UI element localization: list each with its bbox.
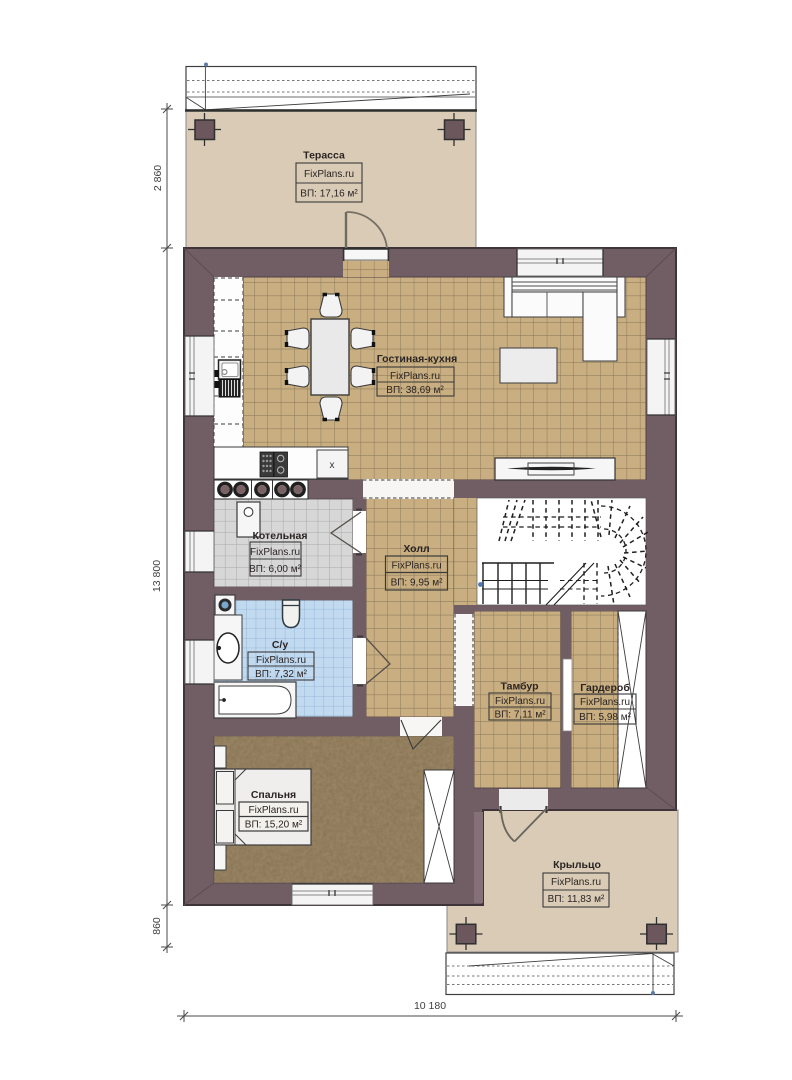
- svg-text:FixPlans.ru: FixPlans.ru: [304, 169, 354, 180]
- svg-text:ВП: 15,20 м²: ВП: 15,20 м²: [245, 820, 303, 831]
- svg-text:С/у: С/у: [272, 639, 289, 651]
- svg-text:13 800: 13 800: [151, 560, 163, 592]
- svg-text:ВП: 5,98 м²: ВП: 5,98 м²: [579, 712, 632, 723]
- svg-text:2 860: 2 860: [152, 165, 164, 191]
- svg-text:Котельная: Котельная: [253, 530, 308, 542]
- svg-text:860: 860: [151, 917, 163, 935]
- svg-text:Холл: Холл: [403, 543, 429, 555]
- svg-text:ВП: 7,11 м²: ВП: 7,11 м²: [494, 710, 546, 721]
- svg-text:10 180: 10 180: [414, 1000, 446, 1012]
- svg-text:ВП: 9,95 м²: ВП: 9,95 м²: [391, 578, 444, 589]
- svg-text:FixPlans.ru: FixPlans.ru: [390, 371, 440, 382]
- svg-text:Гостиная-кухня: Гостиная-кухня: [377, 353, 457, 365]
- svg-text:FixPlans.ru: FixPlans.ru: [256, 655, 306, 666]
- svg-text:ВП: 6,00 м²: ВП: 6,00 м²: [249, 564, 302, 575]
- svg-text:Спальня: Спальня: [251, 789, 296, 801]
- svg-text:FixPlans.ru: FixPlans.ru: [580, 697, 630, 708]
- svg-text:ВП: 17,16 м²: ВП: 17,16 м²: [300, 189, 358, 200]
- svg-text:ВП: 38,69 м²: ВП: 38,69 м²: [386, 385, 444, 396]
- svg-text:FixPlans.ru: FixPlans.ru: [248, 805, 298, 816]
- svg-text:ВП: 11,83 м²: ВП: 11,83 м²: [548, 894, 605, 905]
- svg-text:Тамбур: Тамбур: [500, 681, 538, 693]
- svg-text:FixPlans.ru: FixPlans.ru: [495, 696, 545, 707]
- svg-text:FixPlans.ru: FixPlans.ru: [250, 547, 300, 558]
- svg-text:FixPlans.ru: FixPlans.ru: [391, 561, 441, 572]
- svg-text:FixPlans.ru: FixPlans.ru: [551, 877, 601, 888]
- svg-text:Гардероб: Гардероб: [580, 682, 630, 694]
- svg-text:Терасса: Терасса: [303, 150, 345, 162]
- svg-text:x: x: [330, 460, 335, 471]
- svg-text:ВП: 7,32 м²: ВП: 7,32 м²: [255, 669, 308, 680]
- svg-text:Крыльцо: Крыльцо: [553, 859, 601, 871]
